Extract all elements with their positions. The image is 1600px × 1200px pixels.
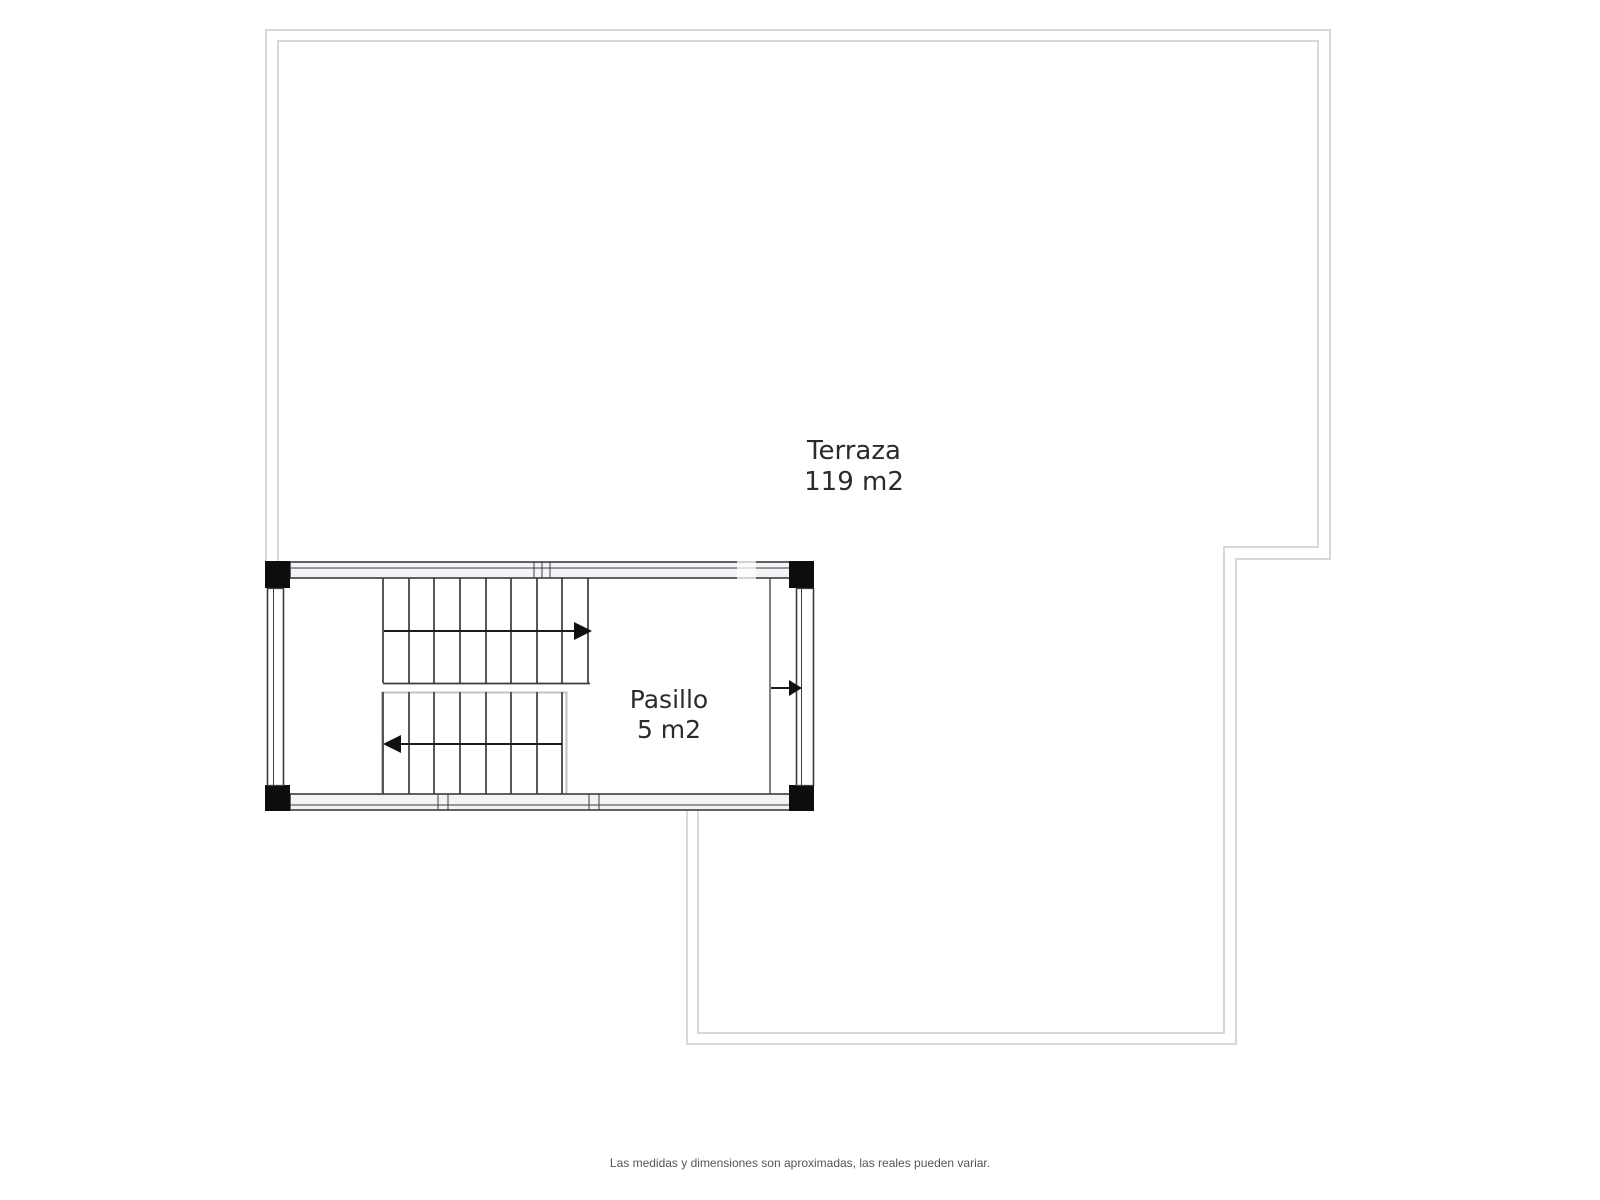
room-name: Pasillo: [630, 685, 708, 715]
room-label-terraza: Terraza 119 m2: [804, 436, 904, 498]
corner-post: [789, 785, 814, 811]
room-area: 119 m2: [804, 467, 904, 498]
corner-post: [265, 785, 290, 811]
upper-stair-flight: [383, 578, 592, 683]
room-label-pasillo: Pasillo 5 m2: [630, 685, 708, 745]
exit-arrow-icon: [771, 680, 802, 696]
terraza-outline-outer: [266, 30, 1330, 1044]
terraza-outline-inner: [278, 41, 1318, 1033]
bottom-wall: [290, 794, 790, 810]
top-wall-opening: [737, 560, 756, 580]
terraza-outline: [266, 30, 1330, 1044]
stair-up-arrow-icon: [384, 622, 592, 640]
top-wall-band: [290, 562, 790, 578]
corner-posts: [265, 561, 814, 811]
lower-stair-flight: [383, 692, 562, 794]
disclaimer-text: Las medidas y dimensiones son aproximada…: [610, 1156, 990, 1170]
floorplan-drawing: [0, 0, 1600, 1200]
corner-post: [265, 561, 290, 588]
room-name: Terraza: [804, 436, 904, 467]
bottom-wall-band: [290, 794, 790, 810]
room-area: 5 m2: [630, 715, 708, 745]
stairwell-structure: [265, 560, 814, 811]
left-window-wall: [267, 588, 284, 786]
corner-post: [789, 561, 814, 588]
floorplan-canvas: Terraza 119 m2 Pasillo 5 m2 Las medidas …: [0, 0, 1600, 1200]
top-wall: [290, 560, 790, 580]
